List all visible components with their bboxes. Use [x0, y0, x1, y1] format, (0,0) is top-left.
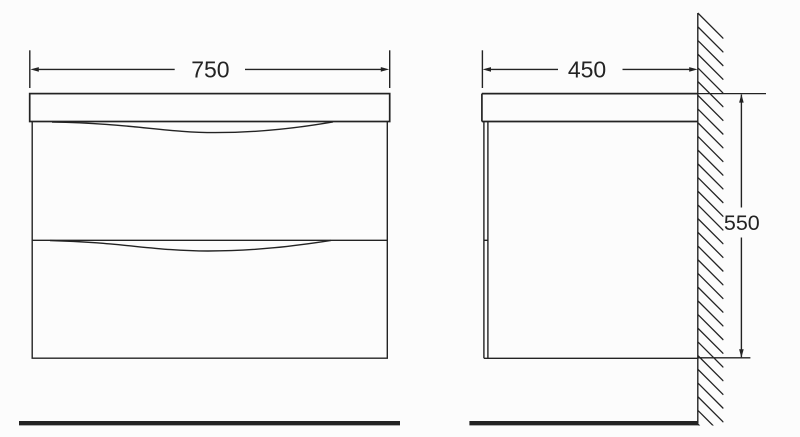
svg-text:750: 750	[191, 57, 229, 83]
svg-text:550: 550	[724, 211, 760, 235]
svg-text:450: 450	[568, 57, 606, 83]
